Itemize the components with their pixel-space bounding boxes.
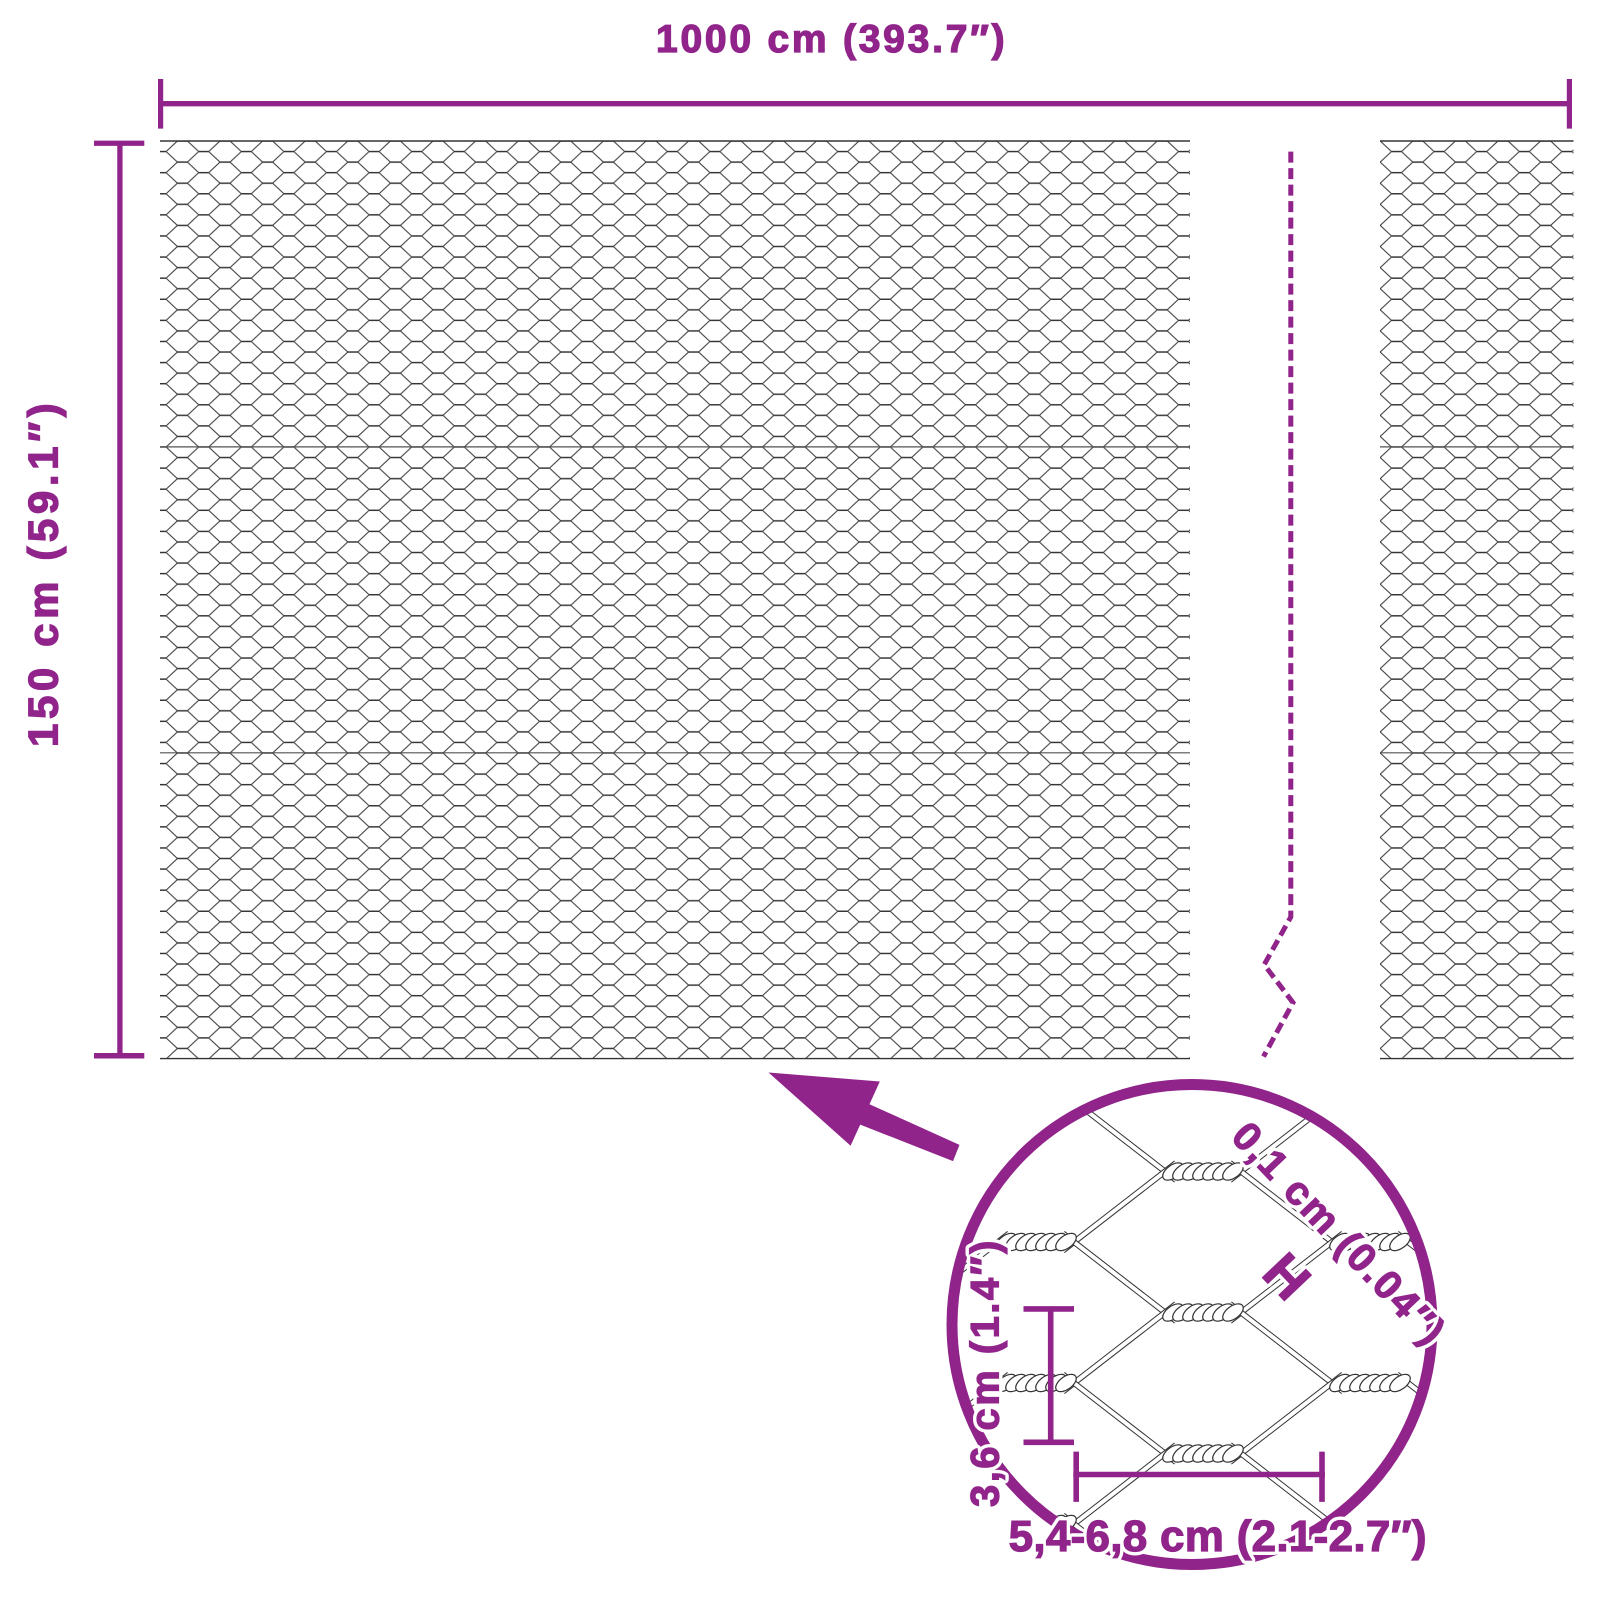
svg-text:5,4-6,8 cm (2.1-2.7″): 5,4-6,8 cm (2.1-2.7″): [1009, 1512, 1427, 1561]
svg-text:150 cm (59.1″): 150 cm (59.1″): [20, 399, 67, 747]
svg-text:1000 cm (393.7″): 1000 cm (393.7″): [656, 18, 1007, 61]
svg-text:3,6 cm (1.4″): 3,6 cm (1.4″): [964, 1238, 1008, 1507]
